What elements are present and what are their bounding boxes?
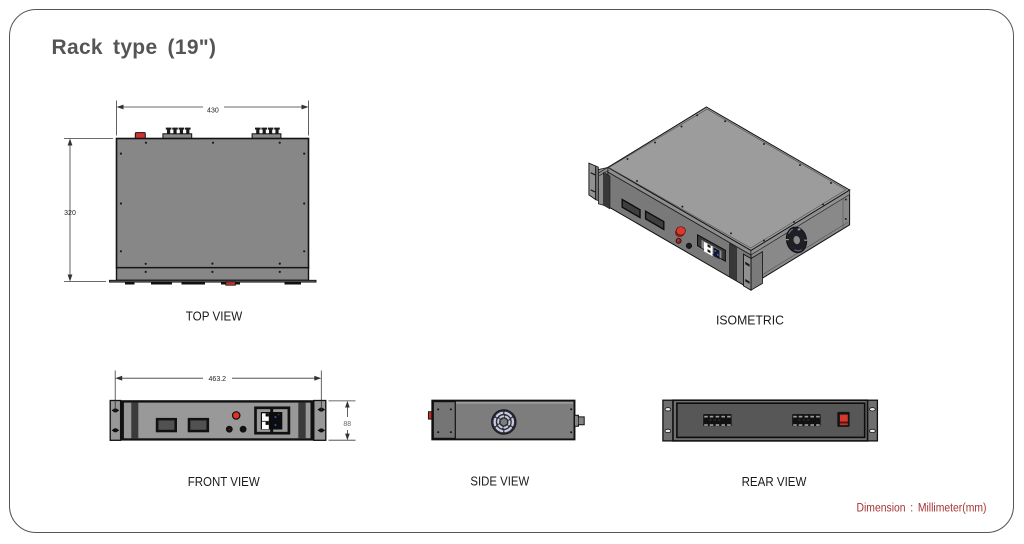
svg-text:TOP VIEW: TOP VIEW	[186, 308, 243, 323]
svg-text:SIDE VIEW: SIDE VIEW	[470, 474, 530, 489]
svg-text:88: 88	[343, 421, 351, 428]
svg-text:FRONT VIEW: FRONT VIEW	[188, 474, 261, 489]
svg-text:463.2: 463.2	[209, 376, 227, 383]
svg-text:320: 320	[64, 210, 76, 217]
svg-text:430: 430	[207, 108, 219, 115]
svg-text:Dimension : Millimeter(mm): Dimension : Millimeter(mm)	[857, 503, 987, 515]
svg-text:REAR VIEW: REAR VIEW	[742, 474, 808, 489]
svg-text:ISOMETRIC: ISOMETRIC	[716, 313, 784, 328]
